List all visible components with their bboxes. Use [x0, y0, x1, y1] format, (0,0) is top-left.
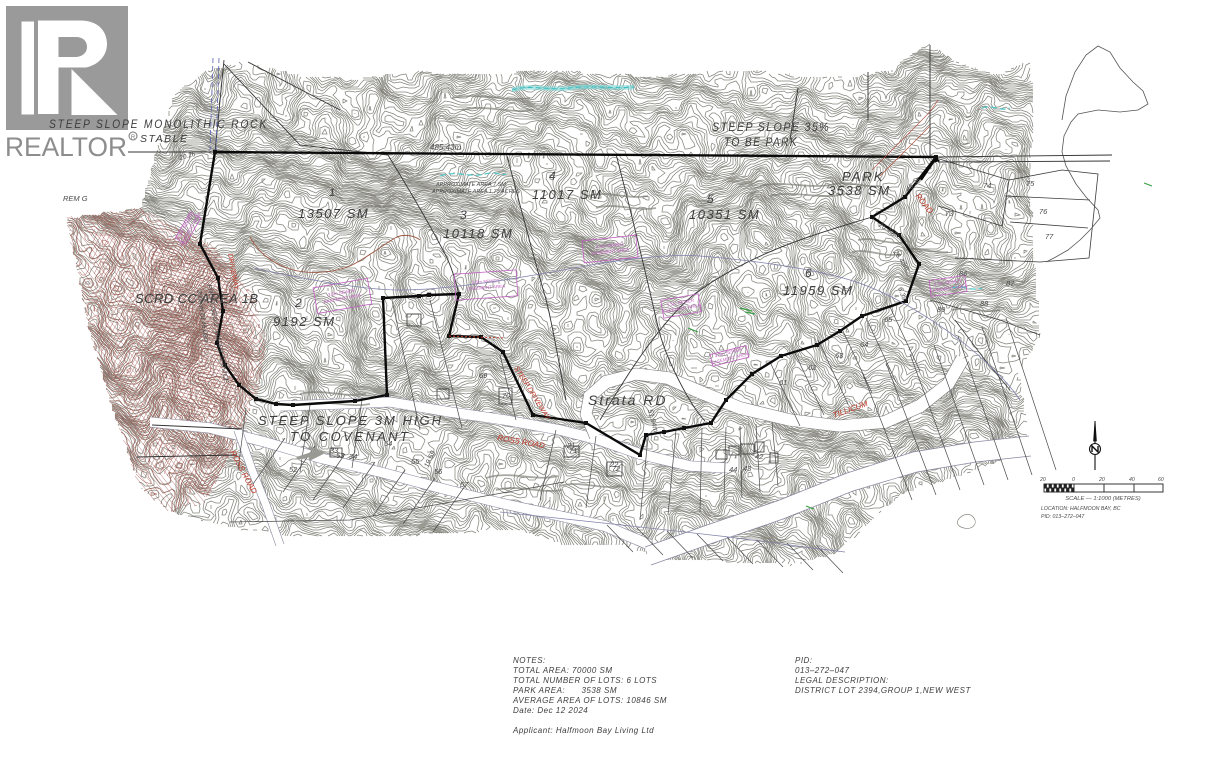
svg-text:STEEP SLOPE MONOLITHIC ROCK: STEEP SLOPE MONOLITHIC ROCK	[49, 119, 268, 131]
svg-text:STEEP SLOPE 35%: STEEP SLOPE 35%	[712, 120, 830, 134]
svg-text:STABLE: STABLE	[140, 133, 189, 145]
svg-text:13507 SM: 13507 SM	[298, 206, 369, 221]
svg-text:Date: Dec 12 2024: Date: Dec 12 2024	[513, 706, 588, 715]
svg-text:0: 0	[1072, 477, 1075, 483]
svg-text:73: 73	[945, 209, 954, 218]
svg-text:PID:: PID:	[795, 656, 813, 665]
svg-text:485.43m: 485.43m	[430, 143, 461, 152]
svg-text:65: 65	[884, 315, 893, 324]
svg-text:6: 6	[805, 266, 812, 280]
svg-text:61: 61	[779, 378, 787, 387]
svg-text:20: 20	[1098, 477, 1105, 483]
svg-text:75: 75	[1026, 179, 1035, 188]
svg-text:40: 40	[1129, 477, 1135, 483]
svg-text:44: 44	[729, 465, 737, 474]
svg-text:R: R	[131, 135, 136, 141]
svg-text:87: 87	[1006, 279, 1015, 288]
svg-text:42: 42	[755, 452, 764, 461]
svg-text:SCALE — 1:1000 (METRES): SCALE — 1:1000 (METRES)	[1065, 496, 1140, 502]
svg-text:APPROXIMATE AREA 7 SM: APPROXIMATE AREA 7 SM	[435, 182, 506, 188]
svg-text:TOTAL AREA: 70000 SM: TOTAL AREA: 70000 SM	[513, 666, 613, 675]
svg-text:4: 4	[549, 169, 556, 183]
svg-text:STEEP SLOPE 3M HIGH: STEEP SLOPE 3M HIGH	[258, 413, 443, 428]
svg-text:9192 SM: 9192 SM	[273, 314, 336, 329]
svg-text:77: 77	[1045, 232, 1054, 241]
svg-text:60: 60	[1158, 477, 1164, 483]
svg-text:33: 33	[330, 446, 339, 455]
svg-text:AVERAGE AREA OF LOTS: 10846 SM: AVERAGE AREA OF LOTS: 10846 SM	[512, 696, 667, 705]
svg-text:10118 SM: 10118 SM	[443, 226, 513, 241]
svg-text:22: 22	[609, 460, 619, 469]
svg-text:64: 64	[860, 340, 868, 349]
svg-text:69: 69	[479, 371, 488, 380]
svg-text:55: 55	[411, 457, 420, 466]
svg-text:TOTAL NUMBER OF LOTS: 6 LOTS: TOTAL NUMBER OF LOTS: 6 LOTS	[513, 676, 657, 685]
svg-text:REALTOR: REALTOR	[5, 132, 127, 162]
svg-text:21: 21	[566, 441, 575, 450]
svg-text:76: 76	[1039, 207, 1048, 216]
svg-text:PARK: PARK	[842, 169, 884, 184]
svg-text:5: 5	[707, 192, 714, 206]
svg-text:NOTES:: NOTES:	[513, 656, 546, 665]
svg-text:70: 70	[502, 391, 511, 400]
svg-text:56: 56	[434, 467, 443, 476]
svg-text:PARK AREA: 3538 SM: PARK AREA: 3538 SM	[513, 686, 617, 695]
svg-text:3: 3	[460, 208, 467, 222]
svg-text:43: 43	[743, 464, 752, 473]
svg-text:34: 34	[349, 452, 357, 461]
svg-text:57: 57	[460, 480, 469, 489]
svg-text:3538 SM: 3538 SM	[828, 183, 891, 198]
svg-text:62: 62	[808, 363, 817, 372]
svg-text:11017 SM: 11017 SM	[532, 187, 602, 202]
svg-text:DISTRICT LOT 2394,GROUP 1,NEW: DISTRICT LOT 2394,GROUP 1,NEW WEST	[795, 686, 971, 695]
svg-text:89: 89	[937, 305, 946, 314]
svg-text:88: 88	[980, 299, 989, 308]
svg-text:LEGAL DESCRIPTION:: LEGAL DESCRIPTION:	[795, 676, 889, 685]
svg-text:PID: 013–272–047: PID: 013–272–047	[1041, 514, 1085, 520]
svg-text:20: 20	[1039, 477, 1046, 483]
svg-text:LOCATION: HALFMOON BAY, BC: LOCATION: HALFMOON BAY, BC	[1041, 506, 1121, 512]
svg-text:APPROXIMATE AREA 1.73 ACRES: APPROXIMATE AREA 1.73 ACRES	[431, 189, 520, 195]
svg-text:63: 63	[835, 351, 844, 360]
svg-text:REM G: REM G	[63, 194, 88, 203]
svg-text:TO BE PARK: TO BE PARK	[724, 135, 798, 149]
svg-text:54: 54	[384, 439, 392, 448]
svg-text:1: 1	[329, 187, 335, 199]
svg-text:74: 74	[983, 181, 991, 190]
svg-text:11959 SM: 11959 SM	[783, 283, 853, 298]
svg-text:10351 SM: 10351 SM	[689, 207, 760, 222]
svg-text:86: 86	[959, 269, 968, 278]
svg-text:Strata RD: Strata RD	[588, 392, 667, 408]
svg-text:Applicant: Halfmoon Bay Living: Applicant: Halfmoon Bay Living Ltd	[512, 726, 654, 735]
svg-text:52: 52	[289, 465, 298, 474]
svg-text:013–272–047: 013–272–047	[795, 666, 849, 675]
svg-text:2: 2	[294, 296, 302, 310]
